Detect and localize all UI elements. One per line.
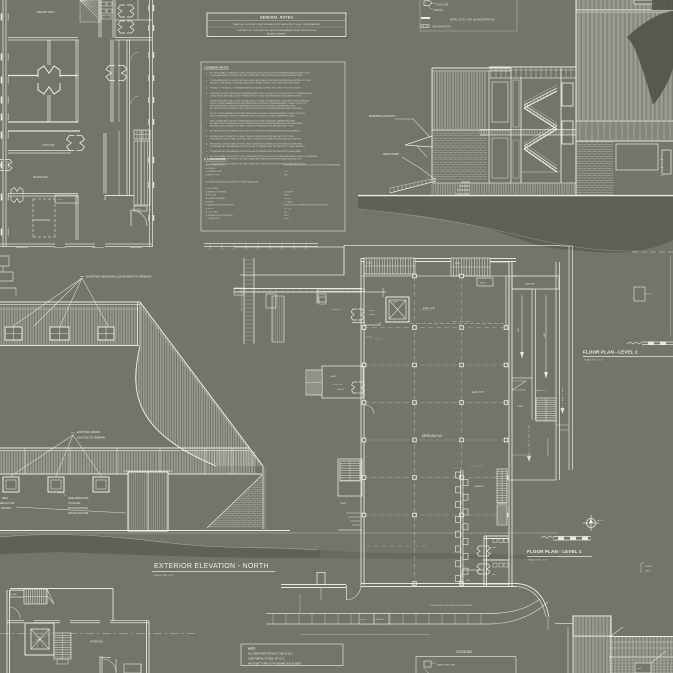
svg-text:FLOOR PLAN - LEVEL 1: FLOOR PLAN - LEVEL 1	[527, 549, 582, 554]
svg-text:PROJECT TYPE AND ALL GOVERNING: PROJECT TYPE AND ALL GOVERNING AGENCIES …	[210, 82, 300, 85]
svg-text:ALL PARTITIONS TO BE METAL STU: ALL PARTITIONS TO BE METAL STUD CONSTRUC…	[210, 107, 303, 110]
svg-text:A. OCC LOAD: A. OCC LOAD	[206, 210, 219, 213]
svg-text:EXIST'G: EXIST'G	[361, 619, 368, 621]
svg-text:96 IN: 96 IN	[284, 215, 289, 217]
svg-text:I. GENERAL NOTES: I. GENERAL NOTES	[204, 66, 229, 70]
svg-text:SCALE: 3/32" = 1'-0": SCALE: 3/32" = 1'-0"	[154, 574, 174, 577]
svg-text:GRAIN CHUTES.: GRAIN CHUTES.	[68, 511, 89, 515]
svg-text:3. EXITS: 3. EXITS	[206, 208, 214, 210]
svg-text:STUD SIZE: STUD SIZE	[436, 3, 449, 6]
svg-text:ELEV. 9'-8": ELEV. 9'-8"	[472, 391, 484, 394]
svg-text:GRATE/: GRATE/	[645, 565, 653, 568]
svg-text:BLDG HT 38 FT VERIFIED W/ CODE: BLDG HT 38 FT VERIFIED W/ CODE SECTION 5…	[284, 205, 328, 207]
svg-text:2. FULL SPRK.: 2. FULL SPRK.	[206, 188, 219, 190]
svg-text:B. EGRESS WIDTH PROVIDED: B. EGRESS WIDTH PROVIDED	[206, 215, 234, 217]
svg-text:EXIST'G SUN PORCH: EXIST'G SUN PORCH	[452, 321, 471, 323]
svg-text:ALL NEW PARTITIONS TO BE 25 GA: ALL NEW PARTITIONS TO BE 25 GA.,	[248, 652, 294, 656]
svg-text:STAIR: STAIR	[330, 375, 336, 378]
svg-text:ELEV.: ELEV.	[369, 310, 375, 312]
svg-text:212: 212	[284, 211, 287, 213]
svg-text:CASHIER: CASHIER	[474, 485, 484, 488]
svg-text:WOMEN: WOMEN	[490, 547, 497, 549]
svg-text:SCALE: 3/32" = 1'-0": SCALE: 3/32" = 1'-0"	[528, 559, 548, 562]
svg-text:DOWN: DOWN	[366, 263, 372, 265]
svg-text:DOORS: DOORS	[1, 506, 11, 510]
svg-text:PARTITION TYPE: PARTITION TYPE	[437, 664, 455, 667]
svg-text:LEVEL ONE: LEVEL ONE	[206, 195, 217, 197]
svg-text:CONTRACTOR TO PROTECT ALL NEW: CONTRACTOR TO PROTECT ALL NEW FINISHES/A…	[237, 29, 317, 32]
svg-text:RE: RE	[660, 159, 664, 161]
svg-text:CHUTES TO REMAIN: CHUTES TO REMAIN	[77, 436, 105, 440]
svg-text:OF ANY WORK AND SHALL NOTIFY T: OF ANY WORK AND SHALL NOTIFY THE ARCHITE…	[210, 94, 302, 97]
svg-text:"BARN-STYLE": "BARN-STYLE"	[0, 501, 15, 505]
svg-text:CMU PARTITION: CMU PARTITION	[432, 25, 451, 28]
svg-text:NEW RAMP: NEW RAMP	[383, 152, 399, 156]
svg-text:RATING: RATING	[434, 9, 443, 12]
svg-text:C. TRAVEL DIST: C. TRAVEL DIST	[206, 217, 221, 220]
svg-text:EXISTING GRAIN: EXISTING GRAIN	[77, 430, 100, 434]
svg-text:CONSTR. TYPE: CONSTR. TYPE	[206, 175, 221, 177]
svg-text:NEW: NEW	[2, 496, 9, 500]
svg-text:2 + MEZZ: 2 + MEZZ	[284, 201, 293, 203]
svg-text:WITH 5/8" TYPE X GYP. BOARD EA: WITH 5/8" TYPE X GYP. BOARD EACH SIDE	[248, 662, 301, 666]
svg-text:FACE OF MASONRY UNLESS OTHERWI: FACE OF MASONRY UNLESS OTHERWISE NOTED O…	[210, 115, 296, 118]
svg-text:1. APPLICABLE CODE: 1. APPLICABLE CODE	[206, 164, 226, 167]
svg-text:8,200: 8,200	[284, 195, 289, 197]
svg-text:PROJECT TYPE AND ALL GOVERNING: PROJECT TYPE AND ALL GOVERNING AGENCIES …	[210, 87, 301, 90]
svg-text:OCCUPANCY USE: OCCUPANCY USE	[206, 170, 223, 173]
svg-text:ALL PARTITIONS TO BE METAL STU: ALL PARTITIONS TO BE METAL STUD CONSTRUC…	[210, 130, 300, 133]
svg-text:ELEV. 9'-4": ELEV. 9'-4"	[333, 384, 343, 386]
svg-text:SCALE: 3/32" = 1'-0": SCALE: 3/32" = 1'-0"	[584, 359, 604, 362]
svg-text:GR: GR	[660, 167, 664, 169]
svg-text:METAL STUD / GYP. BOARD PARTIT: METAL STUD / GYP. BOARD PARTITION	[450, 18, 495, 21]
svg-text:WITH EXISTING: WITH EXISTING	[68, 506, 88, 510]
svg-text:ELEV.: ELEV.	[36, 640, 41, 642]
svg-text:LOBBY: LOBBY	[369, 314, 376, 316]
svg-text:RELATED DAMAGE.: RELATED DAMAGE.	[267, 33, 287, 36]
svg-text:NOTE:: NOTE:	[248, 647, 256, 651]
svg-text:FLOOR PLAN - LEVEL 2: FLOOR PLAN - LEVEL 2	[583, 350, 638, 355]
svg-text:CONFERENCE: CONFERENCE	[32, 218, 50, 222]
svg-text:ELEV. 9'-4": ELEV. 9'-4"	[332, 309, 342, 311]
svg-text:DO: DO	[660, 175, 664, 177]
svg-text:RAMP: RAMP	[543, 332, 546, 338]
svg-text:TO ALIGN: TO ALIGN	[68, 501, 80, 505]
svg-text:COORDINATE ALL MECHANICAL ELEC: COORDINATE ALL MECHANICAL ELECTRICAL AND…	[210, 145, 306, 148]
svg-text:STORIES: STORIES	[206, 201, 215, 203]
svg-text:STAIR: STAIR	[517, 405, 524, 408]
svg-text:M / B: M / B	[284, 171, 289, 173]
svg-text:VERIFY ALL EXISTING CONDITIONS: VERIFY ALL EXISTING CONDITIONS AND NOTIF…	[233, 23, 320, 26]
svg-text:NORTH: NORTH	[597, 520, 604, 522]
svg-text:B. MAXIMUM BUILDING HEIGHT: B. MAXIMUM BUILDING HEIGHT	[206, 204, 235, 207]
svg-text:FINISHED SMOOTH READY FOR PAIN: FINISHED SMOOTH READY FOR PAINT UNLESS O…	[210, 125, 294, 128]
svg-text:JAN.: JAN.	[466, 579, 470, 582]
svg-text:TWO (2): TWO (2)	[284, 208, 292, 210]
svg-text:A. ZONING: A. ZONING	[206, 167, 216, 170]
svg-text:LEGEND: LEGEND	[456, 649, 473, 654]
svg-text:12,750 SF: 12,750 SF	[284, 191, 294, 193]
svg-text:ALLOWED INCREASE: ALLOWED INCREASE	[206, 197, 226, 200]
svg-text:STOR.: STOR.	[58, 199, 64, 201]
svg-text:PROVIDE BLOCKING IN WALLS FOR: PROVIDE BLOCKING IN WALLS FOR ALL WALL M…	[210, 137, 302, 140]
svg-text:GENERAL NOTES: GENERAL NOTES	[260, 16, 293, 20]
svg-text:EXISTING CANOPY: EXISTING CANOPY	[369, 114, 396, 118]
svg-text:A. BASE FLOOR AREA: A. BASE FLOOR AREA	[206, 190, 227, 193]
svg-text:INTERNATIONAL BUILDING CODE 20: INTERNATIONAL BUILDING CODE 2018 EDITION…	[284, 164, 341, 167]
svg-text:DECK: DECK	[645, 571, 651, 573]
svg-text:COORDINATE ALL MECHANICAL ELEC: COORDINATE ALL MECHANICAL ELECTRICAL AND…	[210, 150, 301, 153]
svg-text:LANDING: LANDING	[525, 283, 535, 286]
svg-text:5% WALKWAY SLOPE FLUSH POINT E: 5% WALKWAY SLOPE FLUSH POINT EAST BEGIN	[430, 604, 473, 607]
svg-text:NEW WINDOWS: NEW WINDOWS	[68, 496, 89, 500]
svg-text:RECEPTION: RECEPTION	[37, 10, 55, 14]
svg-text:LOCAL AMENDMENTS THERETO AS WE: LOCAL AMENDMENTS THERETO AS WELL AS ANY …	[210, 74, 304, 77]
svg-text:148 FT: 148 FT	[284, 218, 291, 220]
svg-text:10.: 10.	[206, 143, 209, 145]
svg-text:SITE AREA AND BUILDING SQUARE: SITE AREA AND BUILDING SQUARE FOOTAGE TA…	[206, 180, 260, 183]
svg-text:EXISTING WINDOW LOCATIONS TO R: EXISTING WINDOW LOCATIONS TO REMAIN	[86, 275, 151, 279]
svg-text:MERCANTILE: MERCANTILE	[422, 434, 443, 438]
svg-text:ELEV. 9'-8": ELEV. 9'-8"	[423, 307, 435, 310]
svg-text:COPY RM.: COPY RM.	[42, 143, 55, 147]
svg-text:STAIR: STAIR	[340, 502, 346, 505]
svg-text:II. CODE REVIEW: II. CODE REVIEW	[204, 157, 226, 161]
svg-text:EXTERIOR ELEVATION - NORTH: EXTERIOR ELEVATION - NORTH	[154, 563, 269, 570]
svg-text:3 5/8" METAL STUDS, 16" O.C.,: 3 5/8" METAL STUDS, 16" O.C.,	[248, 657, 286, 661]
svg-text:MARKETING: MARKETING	[33, 175, 48, 179]
svg-text:RAMP: RAMP	[480, 282, 486, 285]
svg-text:ELEV.: ELEV.	[393, 302, 398, 304]
svg-text:ELEV. 9'-0": ELEV. 9'-0"	[536, 390, 547, 392]
svg-text:STAIR: STAIR	[455, 262, 461, 265]
svg-text:SHED: SHED	[637, 668, 642, 670]
svg-text:14,250: 14,250	[284, 198, 290, 200]
svg-text:STORAGE: STORAGE	[90, 640, 103, 644]
svg-text:ACCESSIBLE ROUTE: ACCESSIBLE ROUTE	[547, 437, 550, 456]
svg-text:STAIR: STAIR	[12, 593, 18, 596]
svg-text:RAMP: RAMP	[517, 327, 520, 333]
